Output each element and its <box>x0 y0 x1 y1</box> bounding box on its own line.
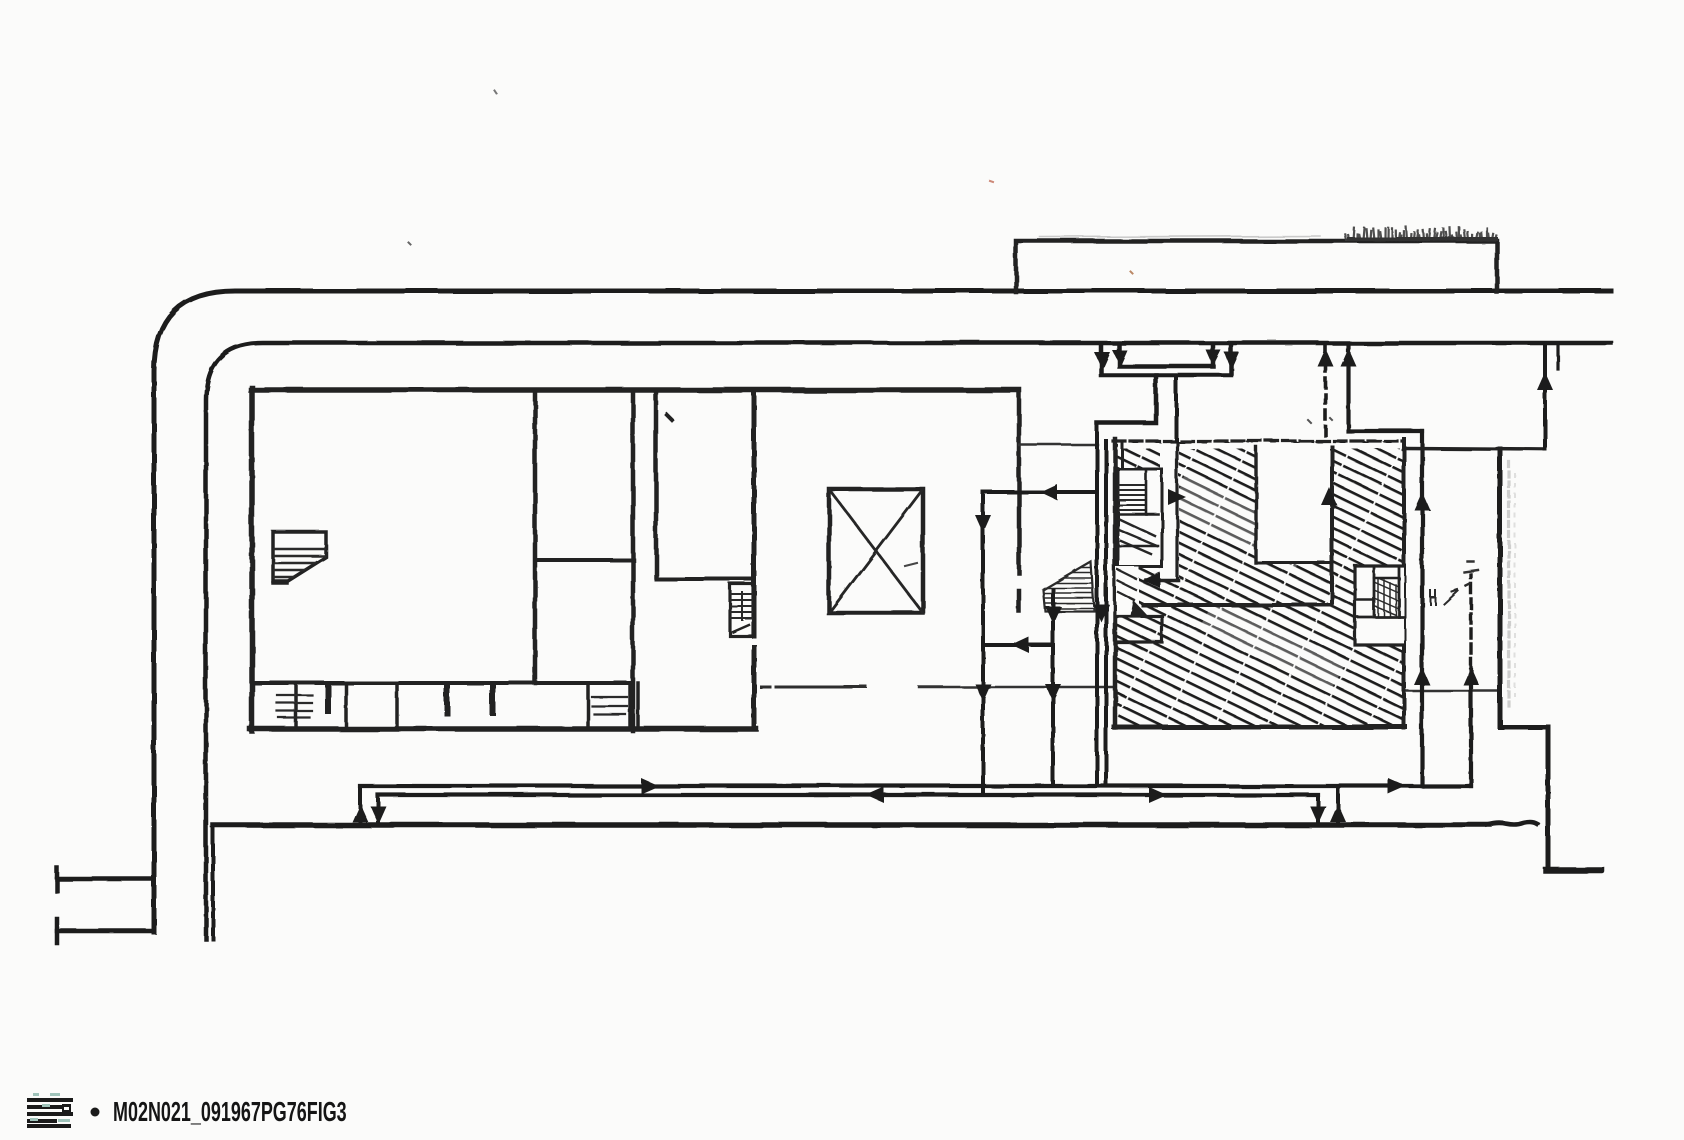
svg-text:M02N021_091967PG76FIG3: M02N021_091967PG76FIG3 <box>113 1096 347 1127</box>
